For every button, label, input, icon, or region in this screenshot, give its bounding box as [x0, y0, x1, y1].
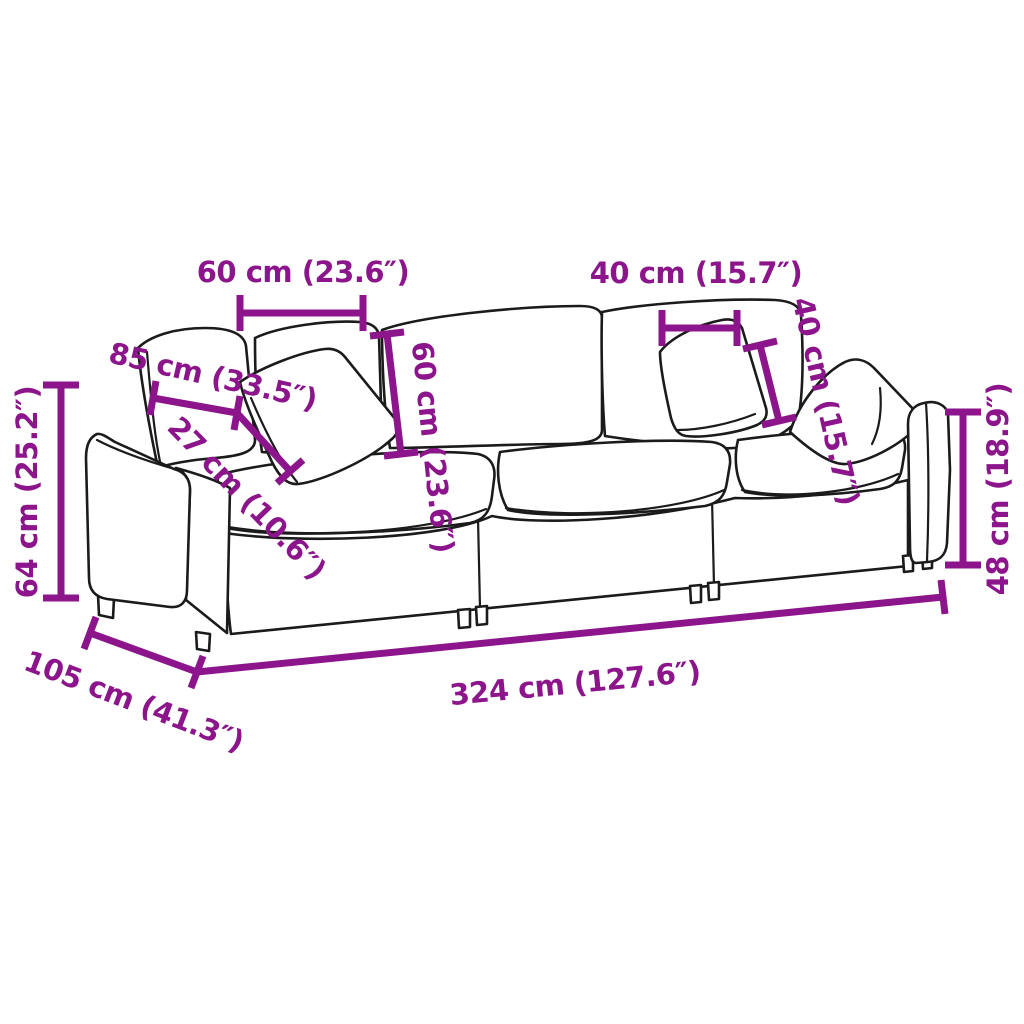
dim-arm-height: 48 cm (18.9″): [945, 383, 1015, 595]
dim-label-pillow-left-width: 60 cm (23.6″): [197, 255, 409, 289]
sofa-leg: [196, 632, 210, 651]
dimension-diagram: 60 cm (23.6″) 40 cm (15.7″) 85 cm (33.5″…: [0, 0, 1024, 1024]
dim-label-arm-height: 48 cm (18.9″): [981, 383, 1015, 595]
sofa-dimension-drawing: 60 cm (23.6″) 40 cm (15.7″) 85 cm (33.5″…: [0, 0, 1024, 1024]
dim-depth: 105 cm (41.3″): [19, 617, 248, 759]
dim-overall-height: 64 cm (25.2″): [10, 385, 79, 598]
sofa-leg: [458, 609, 470, 628]
dim-label-overall-height: 64 cm (25.2″): [10, 386, 44, 598]
sofa-leg: [476, 606, 487, 625]
dim-label-pillow-right-width: 40 cm (15.7″): [590, 256, 802, 290]
sofa-leg: [690, 585, 701, 603]
dim-pillow-left-width: 60 cm (23.6″): [197, 255, 409, 331]
sofa-leg: [708, 582, 719, 600]
dim-line: [43, 385, 79, 598]
seat-cushion-2: [498, 441, 730, 515]
dim-label-overall-width: 324 cm (127.6″): [448, 654, 702, 712]
dim-label-depth: 105 cm (41.3″): [19, 644, 248, 759]
